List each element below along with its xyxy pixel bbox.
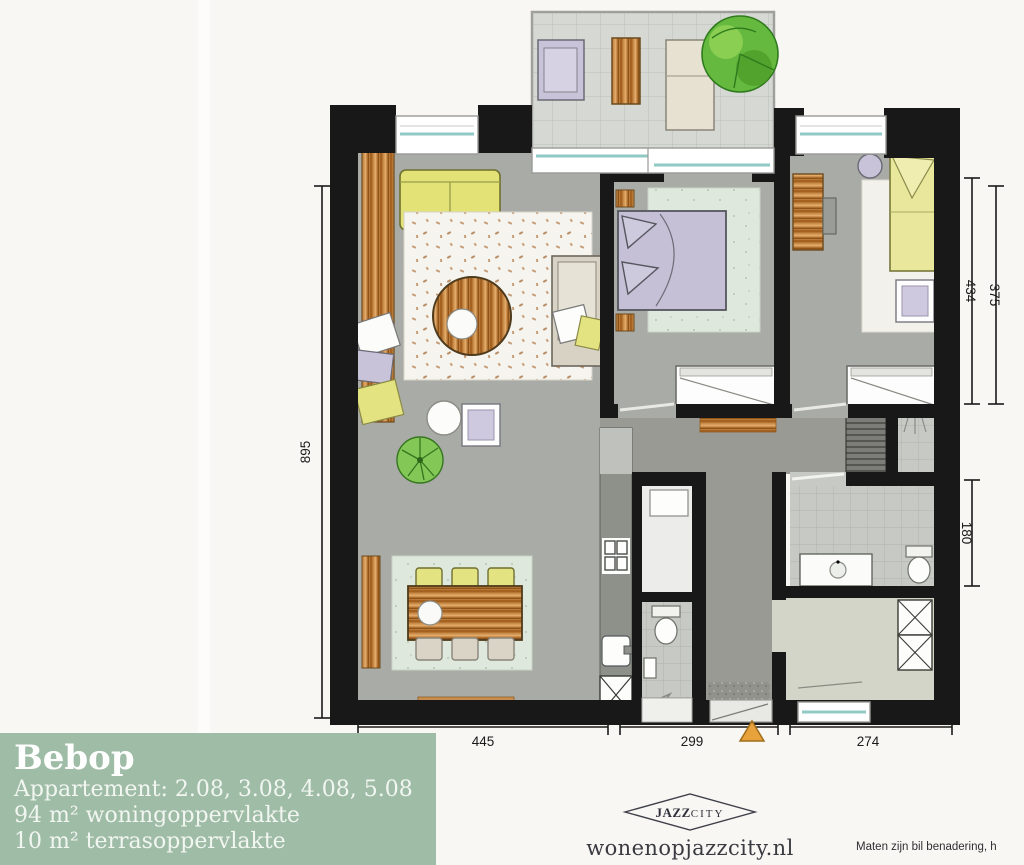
bedroom-3-window — [798, 702, 870, 722]
hall-runner-wood — [700, 417, 776, 432]
nightstand-bottom — [616, 314, 634, 331]
door-mat — [708, 682, 770, 702]
dim-label-299: 299 — [681, 734, 704, 749]
footer-branding: JAZZCITY wonenopjazzcity.nl — [575, 790, 805, 860]
sink-icon — [602, 636, 632, 666]
wardrobe-1 — [676, 366, 776, 406]
toilet-bathroom-icon — [906, 546, 932, 583]
pouf — [858, 154, 882, 178]
apartment-name: Bebop — [14, 741, 436, 777]
toilet-door — [642, 698, 692, 722]
apartment-numbers: Appartement: 2.08, 3.08, 4.08, 5.08 — [14, 777, 436, 803]
terrace — [532, 12, 778, 152]
sideboard-wood — [362, 556, 380, 668]
brochure-page: 895 434 375 180 445 299 274 Bebop Appart… — [0, 0, 1024, 865]
coffee-table — [433, 277, 511, 355]
dim-label-180: 180 — [959, 522, 974, 545]
dining-plate — [418, 601, 442, 625]
wardrobe-3 — [898, 600, 932, 670]
dim-label-434: 434 — [963, 280, 978, 303]
living-room-window — [396, 116, 478, 154]
dining-chairs-bottom — [416, 638, 514, 660]
vanity-sink — [800, 554, 872, 586]
kitchen-counter — [600, 428, 632, 714]
dim-label-445: 445 — [472, 734, 495, 749]
armchair — [552, 256, 605, 366]
dim-label-895: 895 — [298, 441, 313, 464]
terrace-sliding-doors — [532, 148, 774, 173]
living-area: 94 m² woningoppervlakte — [14, 803, 436, 829]
toilet-icon — [652, 606, 680, 644]
disclaimer-text: Maten zijn bil benadering, h — [856, 841, 1024, 853]
round-side-table — [427, 401, 461, 435]
tree — [702, 16, 778, 92]
storage-shelf — [650, 490, 688, 516]
front-door — [710, 700, 772, 722]
wardrobe-2 — [847, 366, 936, 406]
dim-label-274: 274 — [857, 734, 880, 749]
terrace-lounge-chair-purple — [538, 40, 584, 100]
hand-basin-icon — [644, 658, 656, 678]
svg-text:JAZZCITY: JAZZCITY — [656, 805, 725, 820]
bedroom-2-window — [796, 116, 886, 154]
website-text: wonenopjazzcity.nl — [575, 836, 805, 860]
dim-left — [314, 186, 330, 718]
square-side-table — [462, 404, 500, 446]
plant — [397, 437, 443, 483]
apartment-info-box: Bebop Appartement: 2.08, 3.08, 4.08, 5.0… — [0, 733, 436, 865]
jazzcity-logo-icon: JAZZCITY — [615, 790, 765, 834]
nightstand-top — [616, 190, 634, 207]
single-bed — [890, 153, 936, 271]
bedside-table-2 — [896, 280, 934, 322]
dim-label-375: 375 — [987, 284, 1002, 307]
terrace-area: 10 m² terrasoppervlakte — [14, 829, 436, 855]
stove-icon — [602, 538, 630, 574]
terrace-side-table — [612, 38, 640, 104]
double-bed — [618, 211, 726, 310]
